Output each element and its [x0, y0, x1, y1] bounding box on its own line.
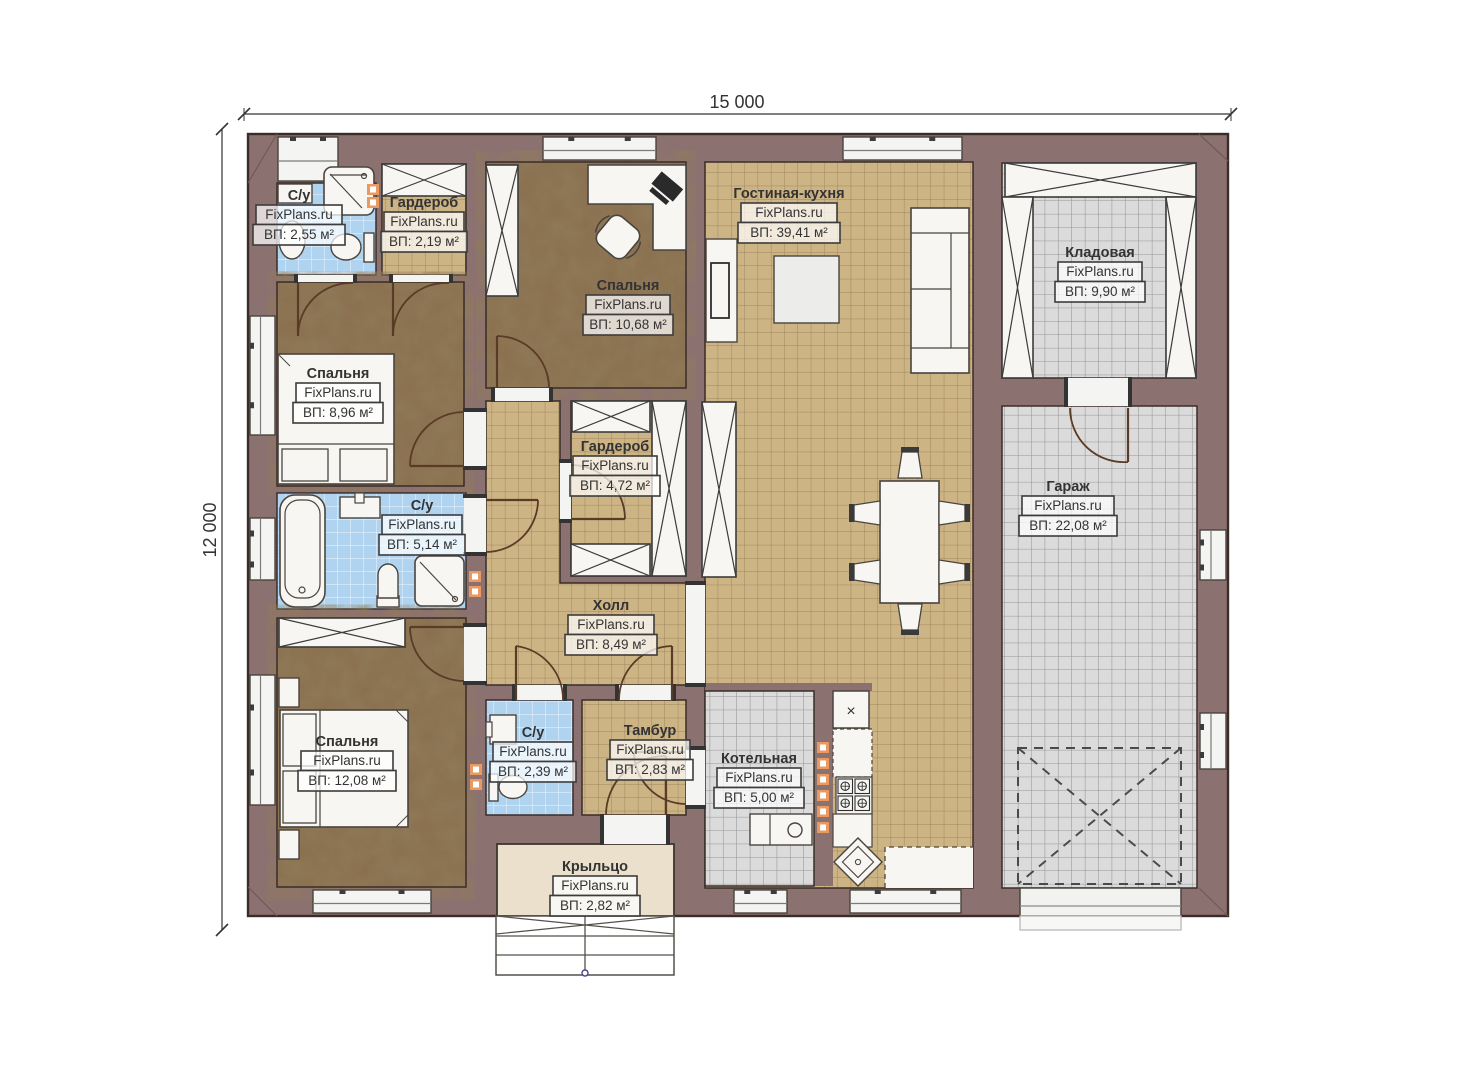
svg-text:FixPlans.ru: FixPlans.ru	[616, 742, 684, 757]
svg-text:Гараж: Гараж	[1046, 479, 1090, 495]
svg-text:Котельная: Котельная	[721, 751, 797, 767]
svg-text:ВП: 2,82 м²: ВП: 2,82 м²	[560, 898, 631, 913]
svg-text:FixPlans.ru: FixPlans.ru	[313, 753, 381, 768]
svg-text:ВП: 5,14 м²: ВП: 5,14 м²	[387, 537, 458, 552]
svg-text:FixPlans.ru: FixPlans.ru	[577, 617, 645, 632]
svg-text:FixPlans.ru: FixPlans.ru	[725, 770, 793, 785]
svg-text:ВП: 2,83 м²: ВП: 2,83 м²	[615, 762, 686, 777]
svg-text:ВП: 22,08 м²: ВП: 22,08 м²	[1029, 518, 1107, 533]
svg-text:ВП: 39,41 м²: ВП: 39,41 м²	[750, 225, 828, 240]
svg-text:Спальня: Спальня	[307, 366, 370, 382]
svg-text:Гардероб: Гардероб	[581, 439, 650, 455]
svg-text:ВП: 8,49 м²: ВП: 8,49 м²	[576, 637, 647, 652]
svg-text:Гардероб: Гардероб	[390, 195, 459, 211]
svg-text:FixPlans.ru: FixPlans.ru	[755, 205, 823, 220]
svg-text:FixPlans.ru: FixPlans.ru	[390, 214, 458, 229]
svg-text:ВП: 8,96 м²: ВП: 8,96 м²	[303, 405, 374, 420]
svg-text:15 000: 15 000	[709, 92, 764, 112]
svg-text:ВП: 10,68 м²: ВП: 10,68 м²	[589, 317, 667, 332]
svg-text:Кладовая: Кладовая	[1065, 245, 1134, 261]
svg-text:С/у: С/у	[522, 725, 545, 741]
svg-text:ВП: 9,90 м²: ВП: 9,90 м²	[1065, 284, 1136, 299]
svg-text:ВП: 2,19 м²: ВП: 2,19 м²	[389, 234, 460, 249]
svg-text:FixPlans.ru: FixPlans.ru	[594, 297, 662, 312]
svg-text:FixPlans.ru: FixPlans.ru	[581, 458, 649, 473]
svg-text:ВП: 4,72 м²: ВП: 4,72 м²	[580, 478, 651, 493]
svg-text:FixPlans.ru: FixPlans.ru	[265, 207, 333, 222]
svg-text:С/у: С/у	[288, 188, 311, 204]
svg-text:ВП: 2,39 м²: ВП: 2,39 м²	[498, 764, 569, 779]
svg-text:С/у: С/у	[411, 498, 434, 514]
svg-text:Холл: Холл	[593, 598, 629, 614]
svg-text:Гостиная-кухня: Гостиная-кухня	[733, 186, 844, 202]
svg-text:Спальня: Спальня	[316, 734, 379, 750]
svg-text:ВП: 2,55 м²: ВП: 2,55 м²	[264, 227, 335, 242]
svg-text:ВП: 12,08 м²: ВП: 12,08 м²	[308, 773, 386, 788]
svg-text:FixPlans.ru: FixPlans.ru	[1034, 498, 1102, 513]
svg-text:Тамбур: Тамбур	[624, 723, 677, 739]
svg-text:Крыльцо: Крыльцо	[562, 859, 628, 875]
svg-text:FixPlans.ru: FixPlans.ru	[1066, 264, 1134, 279]
svg-text:FixPlans.ru: FixPlans.ru	[388, 517, 456, 532]
svg-text:FixPlans.ru: FixPlans.ru	[499, 744, 567, 759]
svg-text:×: ×	[846, 703, 855, 720]
svg-text:ВП: 5,00 м²: ВП: 5,00 м²	[724, 790, 795, 805]
svg-text:FixPlans.ru: FixPlans.ru	[561, 878, 629, 893]
svg-text:Спальня: Спальня	[597, 278, 660, 294]
svg-text:FixPlans.ru: FixPlans.ru	[304, 385, 372, 400]
svg-text:12 000: 12 000	[200, 502, 220, 557]
